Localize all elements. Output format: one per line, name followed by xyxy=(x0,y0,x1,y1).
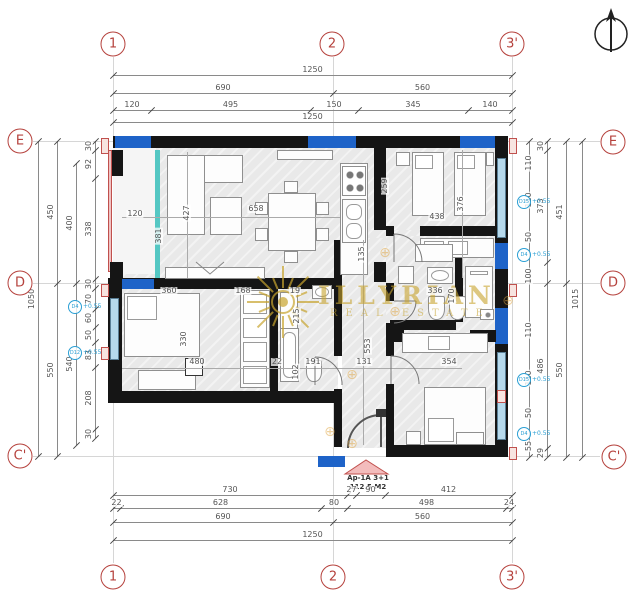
dimension-label: 29 xyxy=(537,446,545,458)
dimension-label: 1250 xyxy=(301,531,323,539)
dimension-label: 22 xyxy=(110,499,122,507)
dimension-label: 690 xyxy=(214,513,231,521)
dimension-label: 215 xyxy=(293,307,301,324)
dining-chair xyxy=(316,228,329,241)
pillow xyxy=(415,155,433,169)
dimension-label: 486 xyxy=(537,357,545,374)
dimension-line xyxy=(113,522,512,523)
nightstand xyxy=(406,431,421,445)
window-tag-note: +0.55 xyxy=(532,198,550,205)
window-tag: D12 xyxy=(68,346,82,360)
grid-bubble-3: 3' xyxy=(500,32,525,57)
dimension-label: 550 xyxy=(556,361,564,378)
entrance-marker xyxy=(345,460,388,474)
column-marker xyxy=(509,447,517,460)
dimension-label: 360 xyxy=(160,287,177,295)
dimension-label: 451 xyxy=(556,203,564,220)
dimension-label: 553 xyxy=(364,337,372,354)
dimension-label: 30 xyxy=(85,277,93,289)
watermark-cross-icon: ⊕ xyxy=(346,367,358,383)
window-tag: D4 xyxy=(517,427,531,441)
nightstand xyxy=(396,152,410,166)
dimension-label: 27 xyxy=(345,486,357,494)
dining-chair xyxy=(284,181,298,193)
dimension-line xyxy=(57,141,58,456)
window-balcony-glass xyxy=(155,150,160,278)
wall-bedroom-bathroom-divider xyxy=(270,289,278,391)
grid-bubble-E: E xyxy=(601,130,626,155)
dimension-label: 354 xyxy=(440,358,457,366)
dining-table xyxy=(268,193,316,251)
watermark-cross-icon: ⊕ xyxy=(502,293,514,309)
entrance-step xyxy=(318,456,345,467)
column-marker xyxy=(101,284,109,297)
dimension-label: 22 xyxy=(271,358,283,366)
wardrobe-section xyxy=(428,336,450,350)
wall-right-blue-segment xyxy=(495,308,508,344)
dimension-label: 628 xyxy=(212,499,229,507)
dimension-label: 135 xyxy=(358,245,366,262)
dimension-label: 90 xyxy=(364,486,376,494)
sink-basin xyxy=(346,204,362,220)
sink-basin xyxy=(346,223,362,239)
dimension-line xyxy=(113,495,512,496)
dimension-label: 560 xyxy=(414,513,431,521)
watermark-subtitle: REAL ESTATE xyxy=(330,308,491,319)
dimension-line xyxy=(582,141,583,457)
dimension-label: 120 xyxy=(126,210,143,218)
wall-bottom-right xyxy=(386,445,508,457)
window-tag-note: +0.55 xyxy=(83,303,101,310)
washbasin-bowl xyxy=(431,270,449,281)
dimension-label: 80 xyxy=(328,499,340,507)
north-arrow-icon xyxy=(595,8,627,52)
ref-line xyxy=(122,217,340,218)
dimension-label: 338 xyxy=(85,220,93,237)
watermark-cross-icon: ⊕ xyxy=(389,304,401,320)
apartment-name: Ap-1A 3+1 xyxy=(340,474,396,483)
dimension-line xyxy=(38,141,39,456)
dimension-label: 1015 xyxy=(572,288,580,310)
dimension-label: 498 xyxy=(418,499,435,507)
wall-bathroom-bottom xyxy=(390,320,456,330)
dimension-label: 30 xyxy=(85,139,93,151)
dimension-line xyxy=(566,141,567,457)
floor-plan: ILLYRIAN REAL ESTATE Ap-1A 3+1 112.5 M2 … xyxy=(0,0,639,605)
grid-bubble-1: 1 xyxy=(101,32,126,57)
dimension-label: 1250 xyxy=(301,66,323,74)
dimension-line xyxy=(547,141,548,457)
pillow xyxy=(127,296,157,320)
wall-bedroom-bottom xyxy=(386,226,394,236)
dimension-line xyxy=(113,508,512,509)
nightstand xyxy=(486,152,494,166)
column-marker xyxy=(509,138,517,154)
dimension-label: 336 xyxy=(426,287,443,295)
dimension-label: 658 xyxy=(247,205,264,213)
vanity-cabinet xyxy=(415,244,453,262)
dimension-label: 30 xyxy=(537,139,545,151)
dimension-label: 427 xyxy=(183,204,191,221)
dimension-label: 50 xyxy=(525,407,533,419)
dimension-label: 110 xyxy=(525,321,533,338)
window-left-bedroom xyxy=(110,298,119,360)
dimension-label: 191 xyxy=(304,358,321,366)
dimension-label: 120 xyxy=(123,101,140,109)
grid-bubble-E: E xyxy=(8,129,33,154)
dimension-label: 131 xyxy=(355,358,372,366)
ref-line xyxy=(462,150,463,278)
column-marker xyxy=(497,390,506,403)
grid-bubble-1: 1 xyxy=(101,565,126,590)
dimension-label: 168 xyxy=(234,287,251,295)
pillow xyxy=(457,155,475,169)
window-tag: D15 xyxy=(517,195,531,209)
dimension-label: 150 xyxy=(325,101,342,109)
watermark-cross-icon: ⊕ xyxy=(346,436,358,452)
dimension-label: 24 xyxy=(503,499,515,507)
stove xyxy=(342,166,366,196)
grid-line-3 xyxy=(512,57,513,563)
dimension-label: 100 xyxy=(525,267,533,284)
window-tag: D15 xyxy=(517,373,531,387)
dimension-label: 550 xyxy=(47,361,55,378)
wardrobe-section xyxy=(243,294,267,314)
dimension-label: 1250 xyxy=(301,113,323,121)
shelf xyxy=(470,271,488,275)
dimension-label: 730 xyxy=(221,486,238,494)
dining-chair xyxy=(316,202,329,215)
dimension-label: 495 xyxy=(222,101,239,109)
dimension-label: 400 xyxy=(66,214,74,231)
wall-corridor-right xyxy=(386,384,394,445)
dimension-label: 50 xyxy=(85,328,93,340)
dimension-label: 345 xyxy=(404,101,421,109)
dimension-label: 412 xyxy=(440,486,457,494)
dimension-label: 60 xyxy=(85,312,93,324)
dining-chair xyxy=(284,251,298,263)
dimension-line xyxy=(113,110,512,111)
window-tag: D4 xyxy=(68,300,82,314)
window-right-upper xyxy=(497,158,506,238)
column-marker xyxy=(101,347,109,360)
dimension-line xyxy=(113,75,512,76)
window-tag-note: +0.55 xyxy=(532,430,550,437)
wall-bottom-left xyxy=(108,391,342,403)
dimension-label: 140 xyxy=(481,101,498,109)
dimension-label: 690 xyxy=(214,84,231,92)
wall-top-blue-segment xyxy=(308,136,356,148)
wardrobe-section xyxy=(243,342,267,362)
wall-kitchen-bedroom-divider xyxy=(374,262,386,282)
watermark-cross-icon: ⊕ xyxy=(379,245,391,261)
dimension-line xyxy=(113,540,512,541)
dimension-label: 102 xyxy=(292,363,300,380)
dimension-label: 560 xyxy=(414,84,431,92)
window-tag: D4 xyxy=(517,248,531,262)
window-tag-note: +0.55 xyxy=(532,251,550,258)
dimension-line xyxy=(113,122,512,123)
dimension-label: 450 xyxy=(47,203,55,220)
grid-bubble-D: D xyxy=(601,271,626,296)
dimension-label: 50 xyxy=(525,231,533,243)
grid-bubble-D: D xyxy=(8,271,33,296)
tv-bench xyxy=(165,267,265,279)
grid-bubble-C: C' xyxy=(8,444,33,469)
dimension-label: 438 xyxy=(428,213,445,221)
grid-bubble-2: 2 xyxy=(321,565,346,590)
sofa-chaise xyxy=(167,155,205,235)
dimension-label: 208 xyxy=(85,389,93,406)
window-tag-note: +0.55 xyxy=(532,376,550,383)
dimension-label: 110 xyxy=(525,154,533,171)
dimension-label: 376 xyxy=(457,195,465,212)
wall-separator-blue-segment xyxy=(118,279,154,289)
column-marker xyxy=(101,138,109,154)
dimension-tick xyxy=(92,435,99,442)
dimension-tick xyxy=(73,442,80,449)
bench xyxy=(456,432,484,445)
balcony-rail xyxy=(108,150,112,272)
dimension-label: 381 xyxy=(155,227,163,244)
dimension-label: 30 xyxy=(85,427,93,439)
coffee-table xyxy=(210,197,242,235)
dimension-label: 259 xyxy=(381,177,389,194)
wall-bedroom-bottom xyxy=(420,226,495,236)
grid-bubble-C: C' xyxy=(602,445,627,470)
wall-top-blue-segment xyxy=(115,136,151,148)
window-tag-note: +0.55 xyxy=(83,349,101,356)
dimension-line xyxy=(113,93,512,94)
dining-chair xyxy=(255,228,268,241)
wall-right-blue-segment xyxy=(495,243,508,269)
dimension-label: 480 xyxy=(188,358,205,366)
dimension-label: 330 xyxy=(180,330,188,347)
dimension-label: 170 xyxy=(448,287,456,304)
dimension-label: 92 xyxy=(85,158,93,170)
dimension-label: 55 xyxy=(525,440,533,452)
watermark-cross-icon: ⊕ xyxy=(324,424,336,440)
grid-bubble-3: 3' xyxy=(500,565,525,590)
wardrobe-section xyxy=(243,318,267,338)
dimension-label: 19 xyxy=(289,287,301,295)
pillow xyxy=(428,418,454,442)
grid-bubble-2: 2 xyxy=(320,32,345,57)
cabinet xyxy=(277,150,333,160)
